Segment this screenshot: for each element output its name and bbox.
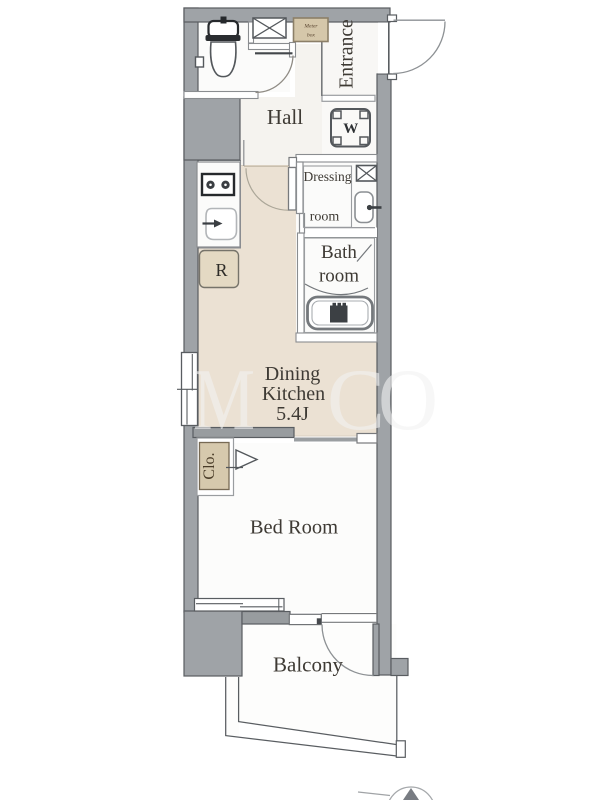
svg-text:M: M bbox=[193, 352, 255, 449]
svg-text:box: box bbox=[307, 33, 316, 39]
svg-text:5.4J: 5.4J bbox=[276, 403, 309, 425]
svg-text:O: O bbox=[378, 352, 438, 449]
svg-text:Dining: Dining bbox=[265, 363, 321, 385]
svg-text:Entrance: Entrance bbox=[337, 19, 358, 88]
svg-text:room: room bbox=[310, 210, 340, 225]
svg-text:Kitchen: Kitchen bbox=[262, 383, 325, 405]
svg-text:Meter: Meter bbox=[303, 24, 318, 30]
svg-text:Hall: Hall bbox=[267, 105, 303, 129]
svg-text:Bath: Bath bbox=[321, 242, 357, 263]
svg-text:room: room bbox=[319, 266, 359, 287]
svg-text:Clo.: Clo. bbox=[201, 452, 218, 479]
svg-text:R: R bbox=[215, 260, 227, 280]
svg-text:W: W bbox=[343, 121, 358, 137]
svg-text:Balcony: Balcony bbox=[273, 653, 343, 677]
svg-text:C: C bbox=[327, 352, 385, 449]
svg-text:Dressing: Dressing bbox=[304, 169, 352, 184]
svg-text:Bed Room: Bed Room bbox=[250, 517, 338, 539]
